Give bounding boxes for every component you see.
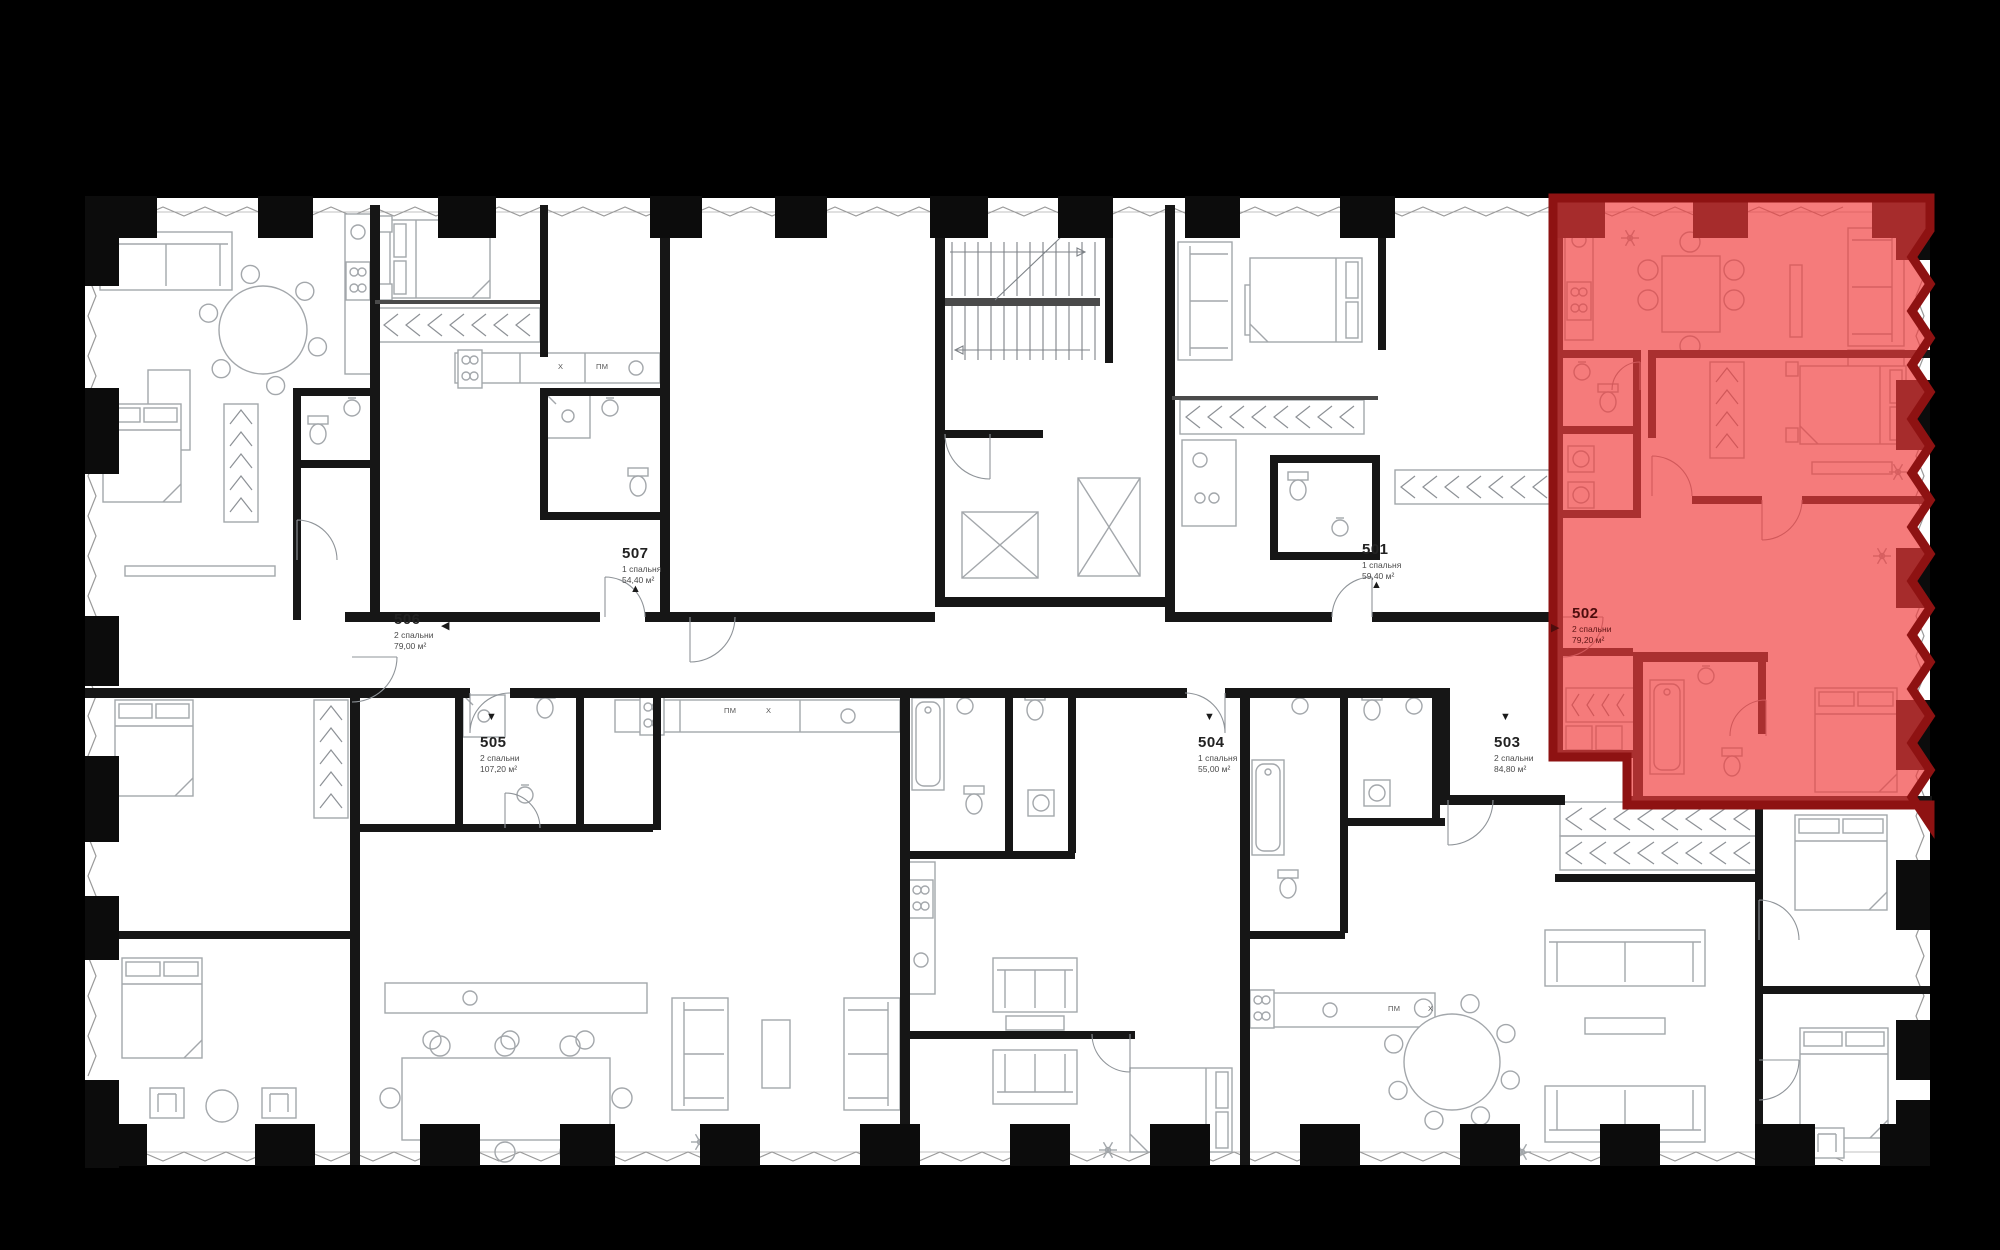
entrance-marker-507: ▲ [630, 583, 641, 595]
appliance-tag: ПМ [1388, 1004, 1400, 1013]
entrance-marker-503: ▼ [1500, 711, 1511, 723]
floor-plan: 5011 спальня59,40 м²▲5022 спальни79,20 м… [0, 0, 2000, 1250]
appliance-tag: Х [1428, 1004, 1433, 1013]
apartment-number: 502 [1572, 604, 1612, 624]
apartment-bedrooms: 1 спальня [1362, 560, 1401, 571]
apartment-label-507[interactable]: 5071 спальня54,40 м² [622, 544, 661, 586]
apartment-bedrooms: 2 спальни [480, 753, 520, 764]
floor-plan-drawing [0, 0, 2000, 1250]
apartment-bedrooms: 2 спальни [1572, 624, 1612, 635]
apartment-area: 55,00 м² [1198, 764, 1237, 775]
apartment-number: 506 [394, 610, 434, 630]
entrance-marker-504: ▼ [1204, 711, 1215, 723]
apartment-label-505[interactable]: 5052 спальни107,20 м² [480, 733, 520, 775]
selected-apartment-overlay[interactable] [1553, 198, 1930, 824]
appliance-tag: Х [766, 706, 771, 715]
entrance-marker-502: ▶ [1551, 621, 1559, 634]
entrance-marker-505: ▼ [486, 711, 497, 723]
apartment-area: 79,00 м² [394, 641, 434, 652]
apartment-number: 504 [1198, 733, 1237, 753]
apartment-area: 84,80 м² [1494, 764, 1534, 775]
apartment-label-506[interactable]: 5062 спальни79,00 м² [394, 610, 434, 652]
apartment-bedrooms: 1 спальня [1198, 753, 1237, 764]
appliance-tag: ПМ [724, 706, 736, 715]
apartment-number: 505 [480, 733, 520, 753]
apartment-label-501[interactable]: 5011 спальня59,40 м² [1362, 540, 1401, 582]
apartment-number: 507 [622, 544, 661, 564]
entrance-marker-501: ▲ [1371, 579, 1382, 591]
apartment-area: 54,40 м² [622, 575, 661, 586]
apartment-label-503[interactable]: 5032 спальни84,80 м² [1494, 733, 1534, 775]
apartment-bedrooms: 2 спальни [394, 630, 434, 641]
apartment-area: 107,20 м² [480, 764, 520, 775]
appliance-tag: Х [558, 362, 563, 371]
entrance-marker-506: ◀ [441, 619, 449, 632]
apartment-area: 79,20 м² [1572, 635, 1612, 646]
apartment-label-502[interactable]: 5022 спальни79,20 м² [1572, 604, 1612, 646]
apartment-number: 501 [1362, 540, 1401, 560]
apartment-bedrooms: 2 спальни [1494, 753, 1534, 764]
apartment-number: 503 [1494, 733, 1534, 753]
appliance-tag: ПМ [596, 362, 608, 371]
apartment-bedrooms: 1 спальня [622, 564, 661, 575]
apartment-label-504[interactable]: 5041 спальня55,00 м² [1198, 733, 1237, 775]
